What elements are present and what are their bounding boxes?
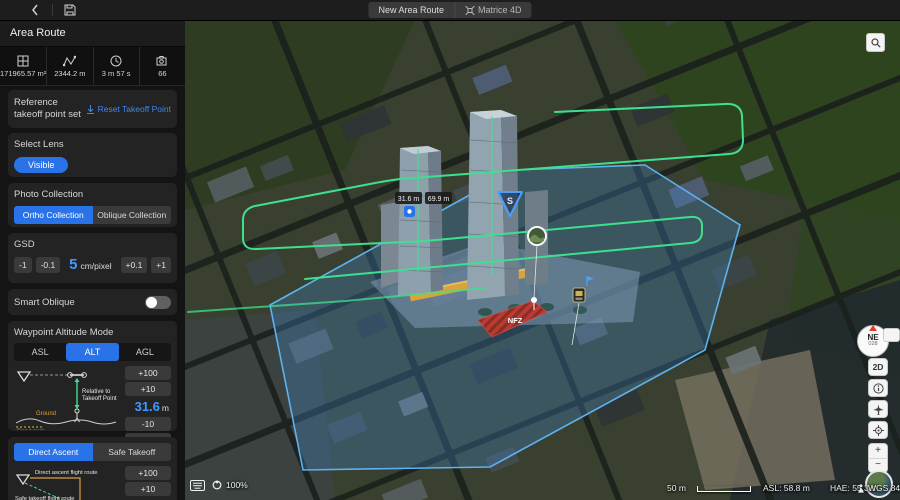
photo-collection-card: Photo Collection Ortho Collection Obliqu… xyxy=(8,183,177,227)
gsd-plus-1-button[interactable]: +1 xyxy=(151,257,171,273)
alt-minus-10-button[interactable]: -10 xyxy=(125,417,171,431)
gsd-card: GSD -1 -0.1 5cm/pixel +0.1 +1 xyxy=(8,233,177,283)
compass-degrees: 028 xyxy=(868,342,877,348)
altitude-badge-2: 69.9 m xyxy=(425,192,452,204)
back-icon[interactable] xyxy=(28,3,42,17)
ascent-card: Direct Ascent Safe Takeoff Direct ascent… xyxy=(8,437,177,500)
search-button[interactable] xyxy=(866,33,885,52)
area-icon xyxy=(17,55,29,67)
lens-visible-button[interactable]: Visible xyxy=(14,157,68,173)
direct-ascent-route-label: Direct ascent flight route xyxy=(35,470,98,476)
zoom-level-icon xyxy=(212,480,222,490)
route-tabs: New Area Route Matrice 4D xyxy=(368,2,531,18)
gsd-minus-1-button[interactable]: -1 xyxy=(14,257,32,273)
sea-level-label: Sea Level xyxy=(17,429,44,430)
duration-icon xyxy=(110,55,122,67)
gsd-plus-01-button[interactable]: +0.1 xyxy=(121,257,148,273)
start-point-label: S xyxy=(507,196,513,206)
map-view: NFZ xyxy=(185,20,900,500)
reset-takeoff-label: Reset Takeoff Point xyxy=(98,104,171,114)
relative-label-2: Takeoff Point xyxy=(82,396,117,402)
locate-icon xyxy=(873,425,884,436)
comment-bubble-icon[interactable] xyxy=(883,328,900,342)
map-zoom-level: 100% xyxy=(212,480,248,490)
sidebar: Area Route 171965.57 m² 2344.2 m 3 m 57 … xyxy=(0,20,185,500)
relative-label-1: Relative to xyxy=(82,389,111,395)
takeoff-point-marker[interactable] xyxy=(528,227,546,245)
lens-label: Select Lens xyxy=(14,139,171,150)
top-bar: New Area Route Matrice 4D xyxy=(0,0,900,21)
distance-icon xyxy=(63,55,76,67)
gsd-number: 5 xyxy=(69,256,77,273)
zoom-in-button[interactable]: + xyxy=(869,444,887,459)
map-info-button[interactable] xyxy=(868,379,888,397)
ortho-collection-button[interactable]: Ortho Collection xyxy=(14,206,93,224)
alt-plus-100-button[interactable]: +100 xyxy=(125,366,171,380)
tab-alt[interactable]: ALT xyxy=(66,343,118,361)
ground-label: Ground xyxy=(36,411,56,417)
reset-takeoff-button[interactable]: Reset Takeoff Point xyxy=(86,104,171,114)
reset-takeoff-icon xyxy=(86,105,95,114)
datum-icon xyxy=(857,484,865,493)
search-icon xyxy=(871,38,881,48)
stat-distance-value: 2344.2 m xyxy=(54,69,85,78)
zoom-controls: + − xyxy=(868,443,888,473)
gsd-value: 5cm/pixel xyxy=(64,256,116,274)
oblique-collection-button[interactable]: Oblique Collection xyxy=(93,206,172,224)
lens-card: Select Lens Visible xyxy=(8,133,177,177)
stat-duration: 3 m 57 s xyxy=(94,47,140,85)
gsd-label: GSD xyxy=(14,239,171,250)
photos-icon xyxy=(156,55,169,67)
gsd-minus-01-button[interactable]: -0.1 xyxy=(36,257,61,273)
takeoff-label: Reference takeoff point set xyxy=(14,97,82,122)
tab-matrice-4d[interactable]: Matrice 4D xyxy=(454,2,532,18)
safe-takeoff-button[interactable]: Safe Takeoff xyxy=(93,443,172,461)
altitude-diagram: Relative to Takeoff Point Ground Sea Lev… xyxy=(14,366,118,430)
datum-readout: WGS 84 xyxy=(857,483,900,493)
alt-value: 31.6m xyxy=(125,398,171,415)
topbar-divider xyxy=(52,4,53,16)
keyboard-icon xyxy=(190,480,205,491)
stat-area: 171965.57 m² xyxy=(0,47,47,85)
page-title: Area Route xyxy=(0,20,185,47)
stat-area-value: 171965.57 m² xyxy=(0,69,46,78)
photo-collection-label: Photo Collection xyxy=(14,189,171,200)
app-window: New Area Route Matrice 4D Area Route 171… xyxy=(0,0,900,500)
smart-oblique-label: Smart Oblique xyxy=(14,297,75,308)
drone-glyph xyxy=(68,373,87,378)
takeoff-card: Reference takeoff point set Reset Takeof… xyxy=(8,90,177,128)
scale-label: 50 m xyxy=(667,483,686,493)
ascent-diagram: Direct ascent flight route Safe takeoff … xyxy=(14,466,118,500)
tab-matrice-4d-label: Matrice 4D xyxy=(478,5,522,15)
asl-readout: ASL: 58.8 m xyxy=(763,483,810,493)
gsd-unit: cm/pixel xyxy=(80,261,111,271)
drone-icon xyxy=(465,6,474,15)
altitude-mode-label: Waypoint Altitude Mode xyxy=(14,327,171,338)
stat-photos: 66 xyxy=(140,47,185,85)
datum-label: WGS 84 xyxy=(868,483,900,493)
tab-agl[interactable]: AGL xyxy=(119,343,171,361)
compass-north-needle xyxy=(869,325,877,331)
smart-oblique-card: Smart Oblique xyxy=(8,289,177,315)
map-canvas[interactable]: NFZ xyxy=(185,20,900,500)
map-zoom-level-value: 100% xyxy=(226,480,248,490)
keyboard-shortcuts-button[interactable] xyxy=(190,480,205,493)
info-icon xyxy=(873,383,884,394)
map-2d-button[interactable]: 2D xyxy=(868,358,888,376)
direct-ascent-button[interactable]: Direct Ascent xyxy=(14,443,93,461)
stat-photos-value: 66 xyxy=(158,69,166,78)
route-stats: 171965.57 m² 2344.2 m 3 m 57 s 66 xyxy=(0,47,185,86)
scale-bar xyxy=(697,486,751,492)
smart-oblique-toggle[interactable] xyxy=(145,296,171,309)
altitude-mode-card: Waypoint Altitude Mode ASL ALT AGL xyxy=(8,321,177,431)
ascent-plus-10-button[interactable]: +10 xyxy=(125,482,171,496)
stat-distance: 2344.2 m xyxy=(47,47,93,85)
ascent-plus-100-button[interactable]: +100 xyxy=(125,466,171,480)
drone-position-badge[interactable] xyxy=(404,206,415,217)
alt-unit: m xyxy=(162,403,169,413)
airplane-icon xyxy=(873,404,884,415)
map-locate-button[interactable] xyxy=(868,421,888,439)
altitude-badge-2-label: 69.9 m xyxy=(428,196,450,203)
alt-plus-10-button[interactable]: +10 xyxy=(125,382,171,396)
photo-waypoint-marker[interactable] xyxy=(573,288,585,302)
stat-duration-value: 3 m 57 s xyxy=(102,69,131,78)
tab-new-area-route[interactable]: New Area Route xyxy=(368,2,454,18)
altitude-badge-1: 31.6 m xyxy=(395,192,422,204)
alt-number: 31.6 xyxy=(135,399,160,414)
map-aircraft-button[interactable] xyxy=(868,400,888,418)
safe-takeoff-route-label: Safe takeoff flight route xyxy=(15,496,75,500)
tab-asl[interactable]: ASL xyxy=(14,343,66,361)
save-icon[interactable] xyxy=(63,3,77,17)
altitude-badge-1-label: 31.6 m xyxy=(398,196,420,203)
tab-new-area-route-label: New Area Route xyxy=(378,5,444,15)
nfz-label: NFZ xyxy=(508,316,523,325)
